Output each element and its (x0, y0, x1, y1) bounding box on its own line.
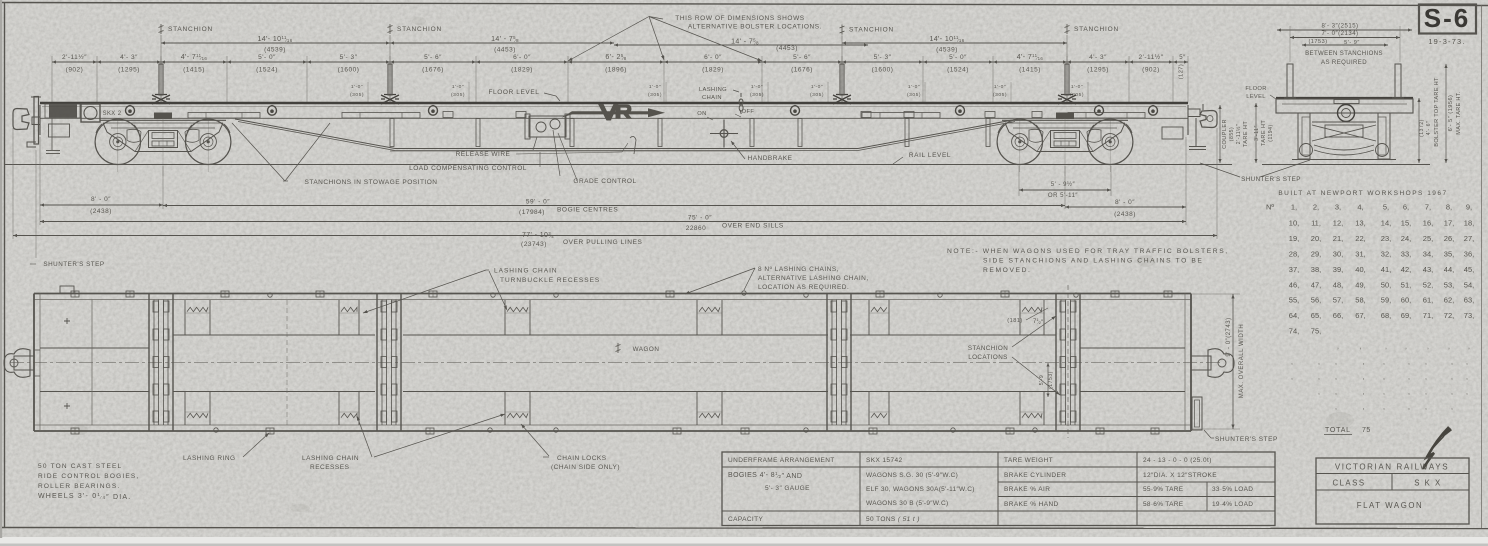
svg-text:STANCHION: STANCHION (397, 26, 442, 33)
svg-text:34,: 34, (1423, 250, 1433, 259)
svg-text:59' - 0″: 59' - 0″ (526, 199, 550, 206)
svg-text:58·6% TARE: 58·6% TARE (1143, 501, 1184, 508)
svg-text:STANCHION: STANCHION (849, 27, 894, 34)
svg-text:29,: 29, (1311, 250, 1321, 259)
svg-text:,: , (1291, 374, 1293, 381)
svg-text:,: , (1466, 374, 1468, 381)
svg-text:,: , (1466, 359, 1468, 366)
svg-text:(2438): (2438) (1114, 211, 1136, 218)
svg-text:,: , (1408, 359, 1410, 366)
svg-text:,: , (1318, 359, 1320, 366)
svg-text:(1896): (1896) (605, 67, 627, 74)
svg-text:3,: 3, (1335, 203, 1341, 212)
svg-text:(305): (305) (907, 92, 921, 98)
svg-text:60,: 60, (1401, 296, 1411, 305)
svg-text:20,: 20, (1311, 234, 1321, 243)
svg-text:67,: 67, (1355, 311, 1365, 320)
svg-text:,: , (1363, 359, 1365, 366)
svg-text:,: , (1425, 389, 1427, 396)
svg-text:7,: 7, (1425, 203, 1431, 212)
svg-text:,: , (1408, 404, 1410, 411)
svg-text:48,: 48, (1333, 281, 1343, 290)
svg-text:18,: 18, (1464, 219, 1474, 228)
svg-text:31,: 31, (1355, 250, 1365, 259)
svg-text:2'-11½″: 2'-11½″ (1235, 124, 1242, 144)
svg-text:69,: 69, (1401, 311, 1411, 320)
svg-text:6'- 0″: 6'- 0″ (513, 54, 531, 61)
svg-text:CLASS: CLASS (1332, 479, 1365, 488)
svg-text:CHAIN: CHAIN (702, 95, 722, 101)
svg-text:NOTE:- WHEN WAGONS USED FOR: NOTE:- WHEN WAGONS USED FOR TRAY TRAFFIC… (947, 248, 1229, 255)
svg-text:(181): (181) (1007, 318, 1023, 324)
svg-text:8' - 0″: 8' - 0″ (1115, 199, 1135, 206)
svg-text:28,: 28, (1289, 250, 1299, 259)
svg-text:RAIL LEVEL: RAIL LEVEL (909, 152, 951, 159)
svg-text:73,: 73, (1464, 311, 1474, 320)
svg-text:UNDERFRAME ARRANGEMENT: UNDERFRAME ARRANGEMENT (728, 457, 835, 464)
svg-text:21,: 21, (1333, 234, 1343, 243)
svg-text:9' - 0″(2743): 9' - 0″(2743) (1226, 317, 1232, 356)
svg-text:23,: 23, (1381, 234, 1391, 243)
svg-text:,: , (1425, 359, 1427, 366)
svg-text:CHAIN LOCKS: CHAIN LOCKS (557, 455, 607, 462)
svg-text:(127): (127) (1179, 64, 1185, 80)
svg-text:4,: 4, (1357, 203, 1363, 212)
svg-text:,: , (1383, 404, 1385, 411)
svg-text:65,: 65, (1311, 311, 1321, 320)
svg-text:4'- 3″: 4'- 3″ (120, 54, 138, 61)
svg-text:12,: 12, (1333, 219, 1343, 228)
svg-text:ALTERNATIVE LASHING CHAIN,: ALTERNATIVE LASHING CHAIN, (758, 275, 869, 282)
svg-text:1,: 1, (1291, 203, 1297, 212)
svg-text:,: , (1425, 404, 1427, 411)
svg-text:,: , (1451, 374, 1453, 381)
svg-text:1'-0″: 1'-0″ (751, 84, 763, 90)
svg-text:,: , (1468, 344, 1470, 351)
svg-text:WAGONS 30 B (5'-9″W.C): WAGONS 30 B (5'-9″W.C) (866, 500, 949, 507)
svg-text:19-3-73.: 19-3-73. (1428, 37, 1465, 46)
svg-text:16,: 16, (1423, 219, 1433, 228)
svg-text:47,: 47, (1311, 281, 1321, 290)
svg-text:(4453): (4453) (494, 47, 516, 54)
svg-text:(1829): (1829) (511, 67, 533, 74)
svg-text:(23743): (23743) (521, 241, 547, 248)
svg-text:71,: 71, (1423, 311, 1433, 320)
svg-text:19·4% LOAD: 19·4% LOAD (1212, 501, 1253, 508)
svg-text:FLOOR: FLOOR (1245, 86, 1266, 92)
svg-text:HANDBRAKE: HANDBRAKE (748, 155, 793, 162)
svg-text:ROLLER BEARINGS.: ROLLER BEARINGS. (38, 483, 120, 490)
svg-text:51,: 51, (1401, 281, 1411, 290)
svg-text:66,: 66, (1333, 311, 1343, 320)
svg-text:(1372): (1372) (1419, 119, 1425, 137)
svg-text:75' - 0″: 75' - 0″ (688, 215, 712, 222)
svg-text:9,: 9, (1466, 203, 1472, 212)
svg-text:(1524): (1524) (256, 67, 278, 74)
svg-text:59,: 59, (1381, 296, 1391, 305)
svg-text:BETWEEN STANCHIONS: BETWEEN STANCHIONS (1305, 51, 1383, 57)
svg-text:,: , (1363, 389, 1365, 396)
svg-text:15,: 15, (1401, 219, 1411, 228)
svg-text:(1600): (1600) (872, 67, 894, 74)
svg-text:,: , (1335, 359, 1337, 366)
svg-text:SHUNTER'S STEP: SHUNTER'S STEP (1241, 176, 1301, 183)
svg-text:GRADE CONTROL: GRADE CONTROL (573, 178, 636, 185)
svg-text:5'-9: 5'-9 (1039, 375, 1045, 385)
svg-text:27,: 27, (1464, 234, 1474, 243)
svg-text:72,: 72, (1444, 311, 1454, 320)
svg-text:S-6: S-6 (1424, 3, 1470, 33)
svg-text:50,: 50, (1381, 281, 1391, 290)
svg-text:(1295): (1295) (1087, 67, 1109, 74)
svg-text:19,: 19, (1289, 234, 1299, 243)
svg-text:,: , (1408, 374, 1410, 381)
svg-text:SKX 2: SKX 2 (103, 111, 122, 117)
svg-text:14' - 75⁄8: 14' - 75⁄8 (491, 35, 519, 43)
svg-text:SIDE STANCHIONS AND LASHING: SIDE STANCHIONS AND LASHING CHAINS TO BE (983, 258, 1203, 265)
svg-text:,: , (1335, 389, 1337, 396)
svg-text:42,: 42, (1401, 265, 1411, 274)
svg-text:BOGIES 4'- 81⁄2″ AND: BOGIES 4'- 81⁄2″ AND (728, 471, 802, 480)
svg-text:5'- 0″: 5'- 0″ (949, 54, 967, 61)
svg-text:35,: 35, (1444, 250, 1454, 259)
svg-text:,: , (1318, 374, 1320, 381)
svg-text:4'- 6″: 4'- 6″ (1426, 121, 1432, 136)
svg-text:(17984): (17984) (519, 209, 545, 216)
svg-text:(2438): (2438) (90, 208, 112, 215)
svg-text:(1829): (1829) (702, 67, 724, 74)
svg-text:36,: 36, (1464, 250, 1474, 259)
svg-text:54,: 54, (1464, 281, 1474, 290)
svg-text:LASHING RING: LASHING RING (183, 455, 236, 462)
svg-text:(4539): (4539) (264, 47, 286, 54)
svg-text:(305): (305) (350, 92, 364, 98)
svg-text:2,: 2, (1313, 203, 1319, 212)
svg-text:,: , (1383, 389, 1385, 396)
svg-text:(4539): (4539) (936, 47, 958, 54)
svg-text:LASHING CHAIN: LASHING CHAIN (302, 455, 359, 462)
svg-text:5'- 3″: 5'- 3″ (340, 54, 358, 61)
svg-text:,: , (1451, 359, 1453, 366)
svg-text:3'-11″: 3'-11″ (1254, 125, 1260, 141)
svg-text:OFF: OFF (742, 109, 755, 115)
svg-text:OVER END SILLS: OVER END SILLS (722, 223, 784, 230)
svg-text:,: , (1385, 344, 1387, 351)
svg-text:1'-0″: 1'-0″ (649, 84, 661, 90)
svg-text:(305): (305) (750, 92, 764, 98)
svg-text:11,: 11, (1311, 219, 1321, 228)
svg-text:8 Nº LASHING CHAINS,: 8 Nº LASHING CHAINS, (758, 266, 839, 273)
svg-text:45,: 45, (1464, 265, 1474, 274)
svg-text:26,: 26, (1444, 234, 1454, 243)
svg-text:,: , (1291, 359, 1293, 366)
svg-text:24,: 24, (1401, 234, 1411, 243)
svg-text:58,: 58, (1355, 296, 1365, 305)
svg-text:56,: 56, (1311, 296, 1321, 305)
svg-text:25,: 25, (1423, 234, 1433, 243)
svg-text:43,: 43, (1423, 265, 1433, 274)
svg-text:MAX. TARE HT.: MAX. TARE HT. (1456, 91, 1462, 135)
svg-text:LOAD COMPENSATING CONTROL: LOAD COMPENSATING CONTROL (409, 165, 527, 172)
svg-text:(1600): (1600) (338, 67, 360, 74)
svg-text:57,: 57, (1333, 296, 1343, 305)
svg-text:TARE HT: TARE HT (1243, 121, 1249, 147)
svg-text:OVER PULLING LINES: OVER PULLING LINES (563, 239, 642, 246)
svg-text:,: , (1363, 404, 1365, 411)
svg-text:55·9% TARE: 55·9% TARE (1143, 486, 1184, 493)
svg-text:(1676): (1676) (422, 67, 444, 74)
svg-text:2'-11½″: 2'-11½″ (62, 53, 87, 61)
svg-text:46,: 46, (1289, 281, 1299, 290)
svg-text:55,: 55, (1289, 296, 1299, 305)
svg-text:1'-0″: 1'-0″ (908, 84, 920, 90)
svg-text:,: , (1466, 389, 1468, 396)
svg-text:(305): (305) (993, 92, 1007, 98)
svg-text:(1524): (1524) (947, 67, 969, 74)
svg-text:(1753): (1753) (1048, 371, 1054, 389)
svg-text:,: , (1427, 344, 1429, 351)
svg-text:10,: 10, (1289, 219, 1299, 228)
svg-text:68,: 68, (1381, 311, 1391, 320)
svg-text:TURNBUCKLE RECESSES: TURNBUCKLE RECESSES (500, 277, 600, 284)
svg-text:1'-0″: 1'-0″ (1071, 84, 1083, 90)
svg-text:40,: 40, (1355, 265, 1365, 274)
svg-text:WAGONS S.G. 30 (5'-9″W.C): WAGONS S.G. 30 (5'-9″W.C) (866, 472, 958, 479)
svg-text:CAPACITY: CAPACITY (728, 516, 763, 523)
svg-text:,: , (1425, 374, 1427, 381)
svg-text:AS REQUIRED: AS REQUIRED (1321, 60, 1367, 66)
svg-text:ON: ON (697, 111, 706, 117)
svg-text:12″DIA. X 12″STROKE: 12″DIA. X 12″STROKE (1143, 472, 1217, 479)
svg-text:,: , (1451, 389, 1453, 396)
svg-text:53,: 53, (1444, 281, 1454, 290)
svg-text:(1295): (1295) (118, 67, 140, 74)
svg-text:FLOOR LEVEL: FLOOR LEVEL (488, 89, 539, 96)
svg-text:14' - 75⁄8: 14' - 75⁄8 (731, 38, 759, 46)
svg-text:VICTORIAN RAILWAYS: VICTORIAN RAILWAYS (1335, 463, 1449, 472)
svg-text:LASHING CHAIN: LASHING CHAIN (494, 268, 558, 275)
svg-text:,: , (1448, 344, 1450, 351)
svg-text:49,: 49, (1355, 281, 1365, 290)
svg-text:5'- 6″: 5'- 6″ (793, 54, 811, 61)
svg-text:BRAKE % AIR: BRAKE % AIR (1004, 486, 1050, 493)
svg-text:STANCHION: STANCHION (968, 345, 1008, 352)
svg-text:(1415): (1415) (1019, 67, 1041, 74)
svg-text:1'-0″: 1'-0″ (351, 84, 363, 90)
svg-text:14,: 14, (1381, 219, 1391, 228)
svg-text:STANCHIONS IN STOWAGE POSIT: STANCHIONS IN STOWAGE POSITION (305, 179, 438, 186)
svg-text:WHEELS 3'- 01⁄4″ DIA.: WHEELS 3'- 01⁄4″ DIA. (38, 492, 131, 501)
svg-text:,: , (1383, 374, 1385, 381)
svg-text:(305): (305) (451, 92, 465, 98)
svg-text:2'-11½″: 2'-11½″ (1139, 53, 1164, 61)
svg-text:8' - 0″: 8' - 0″ (91, 196, 111, 203)
svg-text:,: , (1383, 359, 1385, 366)
svg-text:(4453): (4453) (776, 45, 798, 52)
svg-text:33,: 33, (1401, 250, 1411, 259)
svg-text:5″: 5″ (1179, 55, 1186, 61)
svg-text:75: 75 (1362, 427, 1371, 434)
svg-text:(1753): (1753) (1308, 39, 1327, 45)
svg-text:,: , (1405, 344, 1407, 351)
svg-text:50 TONS ( 51 t ): 50 TONS ( 51 t ) (866, 516, 920, 523)
svg-text:8'- 3″(2515): 8'- 3″(2515) (1321, 24, 1358, 30)
svg-text:6'- 5″ (1956): 6'- 5″ (1956) (1448, 95, 1454, 132)
svg-text:8,: 8, (1446, 203, 1452, 212)
svg-text:22,: 22, (1355, 234, 1365, 243)
svg-text:SHUNTER'S STEP: SHUNTER'S STEP (43, 261, 104, 268)
svg-text:,: , (1360, 344, 1362, 351)
svg-text:62,: 62, (1444, 296, 1454, 305)
svg-text:5'- 3″ GAUGE: 5'- 3″ GAUGE (765, 485, 810, 492)
svg-text:5' - 9½″: 5' - 9½″ (1051, 181, 1076, 188)
svg-text:FLAT WAGON: FLAT WAGON (1357, 501, 1424, 510)
svg-text:LOCATIONS: LOCATIONS (968, 354, 1008, 361)
svg-text:,: , (1451, 404, 1453, 411)
svg-text:ELF 30, WAGONS 30A(5'-11″W.C): ELF 30, WAGONS 30A(5'-11″W.C) (866, 486, 975, 493)
svg-text:5'- 3″: 5'- 3″ (874, 54, 892, 61)
svg-text:BRAKE % HAND: BRAKE % HAND (1004, 501, 1059, 508)
svg-text:5'- 9″: 5'- 9″ (1344, 40, 1360, 46)
svg-text:RELEASE WIRE: RELEASE WIRE (456, 151, 511, 158)
svg-text:,: , (1408, 389, 1410, 396)
svg-text:1'-0″: 1'-0″ (811, 84, 823, 90)
svg-text:5'- 6″: 5'- 6″ (424, 54, 442, 61)
svg-text:TOTAL: TOTAL (1325, 427, 1351, 434)
svg-text:BRAKE CYLINDER: BRAKE CYLINDER (1004, 472, 1066, 479)
svg-text:SHUNTER'S STEP: SHUNTER'S STEP (1215, 436, 1278, 443)
svg-text:4'- 3″: 4'- 3″ (1089, 54, 1107, 61)
svg-text:BUILT AT NEWPORT WORKSHOPS: BUILT AT NEWPORT WORKSHOPS 1967 (1278, 190, 1447, 197)
svg-text:37,: 37, (1289, 265, 1299, 274)
svg-text:(1415): (1415) (183, 67, 205, 74)
svg-text:,: , (1335, 404, 1337, 411)
svg-text:BOLSTER TOP TARE HT: BOLSTER TOP TARE HT (1434, 77, 1440, 147)
svg-text:STANCHION: STANCHION (1074, 26, 1119, 33)
svg-text:RIDE CONTROL BOGIES,: RIDE CONTROL BOGIES, (38, 473, 139, 480)
svg-text:41,: 41, (1381, 265, 1391, 274)
svg-text:,: , (1335, 374, 1337, 381)
svg-text:,: , (1363, 374, 1365, 381)
svg-text:1'-0″: 1'-0″ (994, 84, 1006, 90)
svg-text:MAX. OVERALL WIDTH: MAX. OVERALL WIDTH (1239, 324, 1245, 398)
svg-text:63,: 63, (1464, 296, 1474, 305)
svg-text:WAGON: WAGON (633, 346, 660, 353)
svg-text:17,: 17, (1444, 219, 1454, 228)
svg-text:13,: 13, (1355, 219, 1365, 228)
svg-text:OR 5'-11″: OR 5'-11″ (1048, 193, 1078, 199)
svg-text:38,: 38, (1311, 265, 1321, 274)
svg-text:32,: 32, (1381, 250, 1391, 259)
svg-text:S K X: S K X (1414, 479, 1441, 488)
svg-text:,: , (1318, 389, 1320, 396)
svg-text:ALTERNATIVE BOLSTER LOCATIONS.: ALTERNATIVE BOLSTER LOCATIONS. (688, 24, 822, 31)
svg-text:44,: 44, (1444, 265, 1454, 274)
svg-text:TARE WEIGHT: TARE WEIGHT (1004, 457, 1053, 464)
svg-text:(902): (902) (66, 67, 84, 74)
svg-text:(855): (855) (1229, 127, 1235, 141)
svg-text:7'- 0″(2134): 7'- 0″(2134) (1321, 31, 1358, 37)
svg-text:TARE HT: TARE HT (1261, 120, 1267, 146)
svg-text:30,: 30, (1333, 250, 1343, 259)
svg-text:SKX 15742: SKX 15742 (866, 457, 903, 464)
svg-text:75,: 75, (1311, 327, 1321, 336)
svg-text:LASHING: LASHING (699, 87, 727, 93)
svg-text:33·5% LOAD: 33·5% LOAD (1212, 486, 1253, 493)
svg-text:(305): (305) (810, 92, 824, 98)
svg-text:1'-0″: 1'-0″ (452, 84, 464, 90)
svg-text:52,: 52, (1423, 281, 1433, 290)
svg-text:6'- 0″: 6'- 0″ (704, 54, 722, 61)
svg-text:50 TON CAST STEEL: 50 TON CAST STEEL (38, 463, 122, 470)
svg-text:REMOVED.: REMOVED. (983, 267, 1031, 274)
svg-text:(1676): (1676) (791, 67, 813, 74)
svg-text:BOGIE CENTRES: BOGIE CENTRES (557, 207, 618, 214)
svg-text:77' - 103⁄4: 77' - 103⁄4 (522, 231, 554, 239)
svg-text:LEVEL: LEVEL (1246, 94, 1266, 100)
svg-text:THIS ROW OF DIMENSIONS SHOWS: THIS ROW OF DIMENSIONS SHOWS (675, 15, 805, 22)
svg-text:RECESSES: RECESSES (310, 464, 350, 471)
svg-text:5'- 0″: 5'- 0″ (258, 54, 276, 61)
svg-text:64,: 64, (1289, 311, 1299, 320)
svg-text:74,: 74, (1289, 327, 1299, 336)
svg-text:6,: 6, (1403, 203, 1409, 212)
svg-text:61,: 61, (1423, 296, 1433, 305)
svg-text:,: , (1337, 344, 1339, 351)
svg-text:STANCHION: STANCHION (168, 26, 213, 33)
svg-text:5,: 5, (1383, 203, 1389, 212)
svg-text:(902): (902) (1142, 67, 1160, 74)
svg-text:24 - 13 - 0 - 0 (25.0t): 24 - 13 - 0 - 0 (25.0t) (1143, 457, 1212, 464)
svg-text:39,: 39, (1333, 265, 1343, 274)
svg-text:(305): (305) (648, 92, 662, 98)
svg-text:(CHAIN SIDE ONLY): (CHAIN SIDE ONLY) (551, 464, 620, 471)
svg-text:22860: 22860 (686, 225, 707, 232)
svg-text:Nº: Nº (1266, 203, 1274, 212)
svg-text:6'- 25⁄8: 6'- 25⁄8 (605, 53, 626, 61)
svg-text:LOCATION AS REQUIRED.: LOCATION AS REQUIRED. (758, 284, 849, 291)
svg-text:COUPLER: COUPLER (1222, 119, 1228, 149)
svg-text:(1194): (1194) (1268, 124, 1274, 141)
